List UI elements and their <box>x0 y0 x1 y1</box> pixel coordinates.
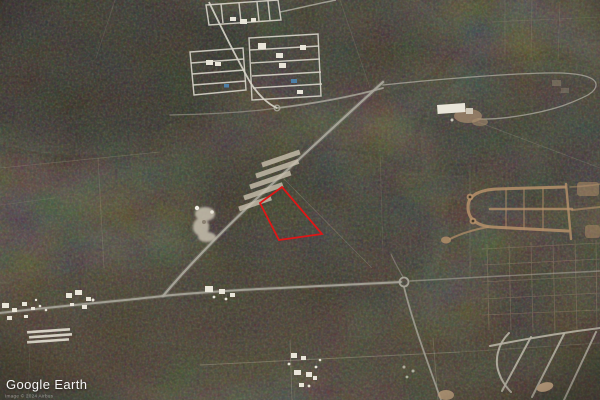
vignette <box>0 0 600 400</box>
satellite-imagery <box>0 0 600 400</box>
google-earth-window: Google Earth Image © 2024 Airbus <box>0 0 600 400</box>
